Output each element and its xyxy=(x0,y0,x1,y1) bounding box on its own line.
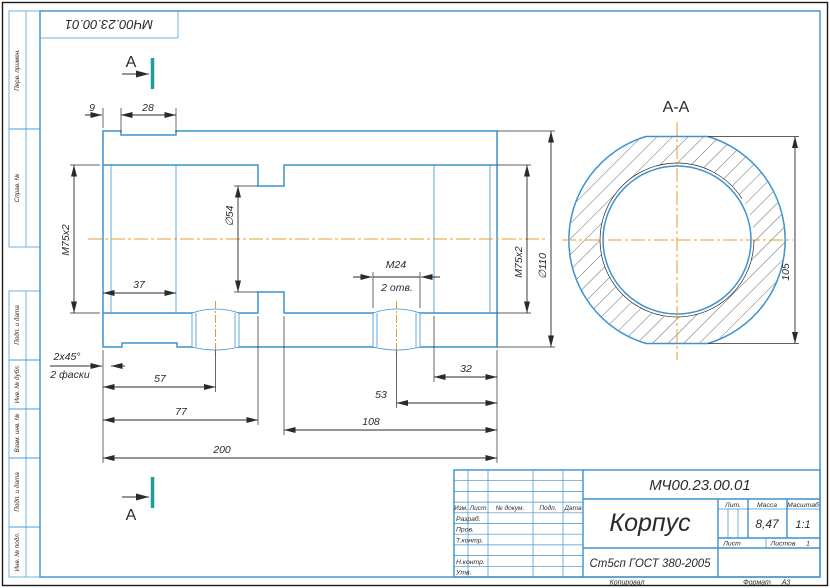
dim-flats-105: 105 xyxy=(780,263,792,281)
copied-label: Копировал xyxy=(610,580,645,587)
margin-label: Подп. и дата xyxy=(13,472,21,512)
dim-28: 28 xyxy=(141,102,154,114)
dim-200: 200 xyxy=(212,444,231,456)
drawing-sheet: Перв. примен. Справ. № Подп. и дата Инв.… xyxy=(0,0,830,588)
lit-label: Лит. xyxy=(724,502,741,509)
doc-number: МЧ00.23.00.01 xyxy=(649,477,751,494)
col-data: Дата xyxy=(563,505,582,512)
margin-label: Справ. № xyxy=(14,174,21,203)
row-utv: Утв. xyxy=(455,570,472,577)
dim-m24-note: 2 отв. xyxy=(380,282,413,294)
sheet-label: Лист xyxy=(722,541,741,548)
col-izm: Изм. xyxy=(454,505,468,512)
dim-thread-left: М75х2 xyxy=(60,224,72,256)
dim-53: 53 xyxy=(375,389,387,401)
mass-value: 8,47 xyxy=(755,517,780,531)
mass-label: Масса xyxy=(757,502,777,509)
note-chamfer-count: 2 фаски xyxy=(49,369,90,381)
margin-label: Взам. инв. № xyxy=(14,413,21,452)
sheets-label: Листов xyxy=(770,541,796,548)
margin-label: Инв. № подл. xyxy=(13,532,21,571)
format-label: Формат xyxy=(743,580,771,587)
dim-108: 108 xyxy=(362,416,380,428)
page-border xyxy=(3,3,828,586)
section-letter-top: А xyxy=(126,54,137,71)
dim-bore-54: ∅54 xyxy=(224,205,236,226)
col-docnum: № докум. xyxy=(496,504,525,512)
scale-value: 1:1 xyxy=(795,519,810,531)
note-chamfer: 2х45° xyxy=(53,351,81,363)
col-podp: Подп. xyxy=(539,504,556,512)
drawing-canvas: Перв. примен. Справ. № Подп. и дата Инв.… xyxy=(0,0,830,588)
format-value: А3 xyxy=(781,580,791,587)
section-letter-bottom: А xyxy=(126,507,137,524)
row-tkontr: Т.контр. xyxy=(456,537,484,544)
part-name: Корпус xyxy=(609,509,691,537)
dim-77: 77 xyxy=(175,406,188,418)
scale-label: Масштаб xyxy=(787,501,820,509)
material: Ст5сп ГОСТ 380-2005 xyxy=(589,558,711,570)
margin-label: Перв. примен. xyxy=(14,49,21,91)
section-view-title: А-А xyxy=(663,99,690,116)
dim-outer-110: ∅110 xyxy=(537,253,549,279)
sheets-value: 1 xyxy=(806,541,810,548)
margin-label: Инв. № дубл. xyxy=(13,365,21,404)
dim-thread-right: М75х2 xyxy=(513,246,525,278)
dim-m24: М24 xyxy=(386,259,407,271)
dim-37: 37 xyxy=(133,279,146,291)
row-prov: Пров. xyxy=(456,527,474,534)
dim-9: 9 xyxy=(89,102,95,114)
col-list: Лист xyxy=(469,505,487,512)
dim-57: 57 xyxy=(154,373,167,385)
row-razrab: Разраб. xyxy=(456,515,481,523)
row-nkontr: Н.контр. xyxy=(456,559,485,566)
margin-label: Подп. и дата xyxy=(13,305,21,345)
top-stamp-number: МЧ00.23.00.01 xyxy=(65,17,153,32)
dim-32: 32 xyxy=(460,363,472,375)
